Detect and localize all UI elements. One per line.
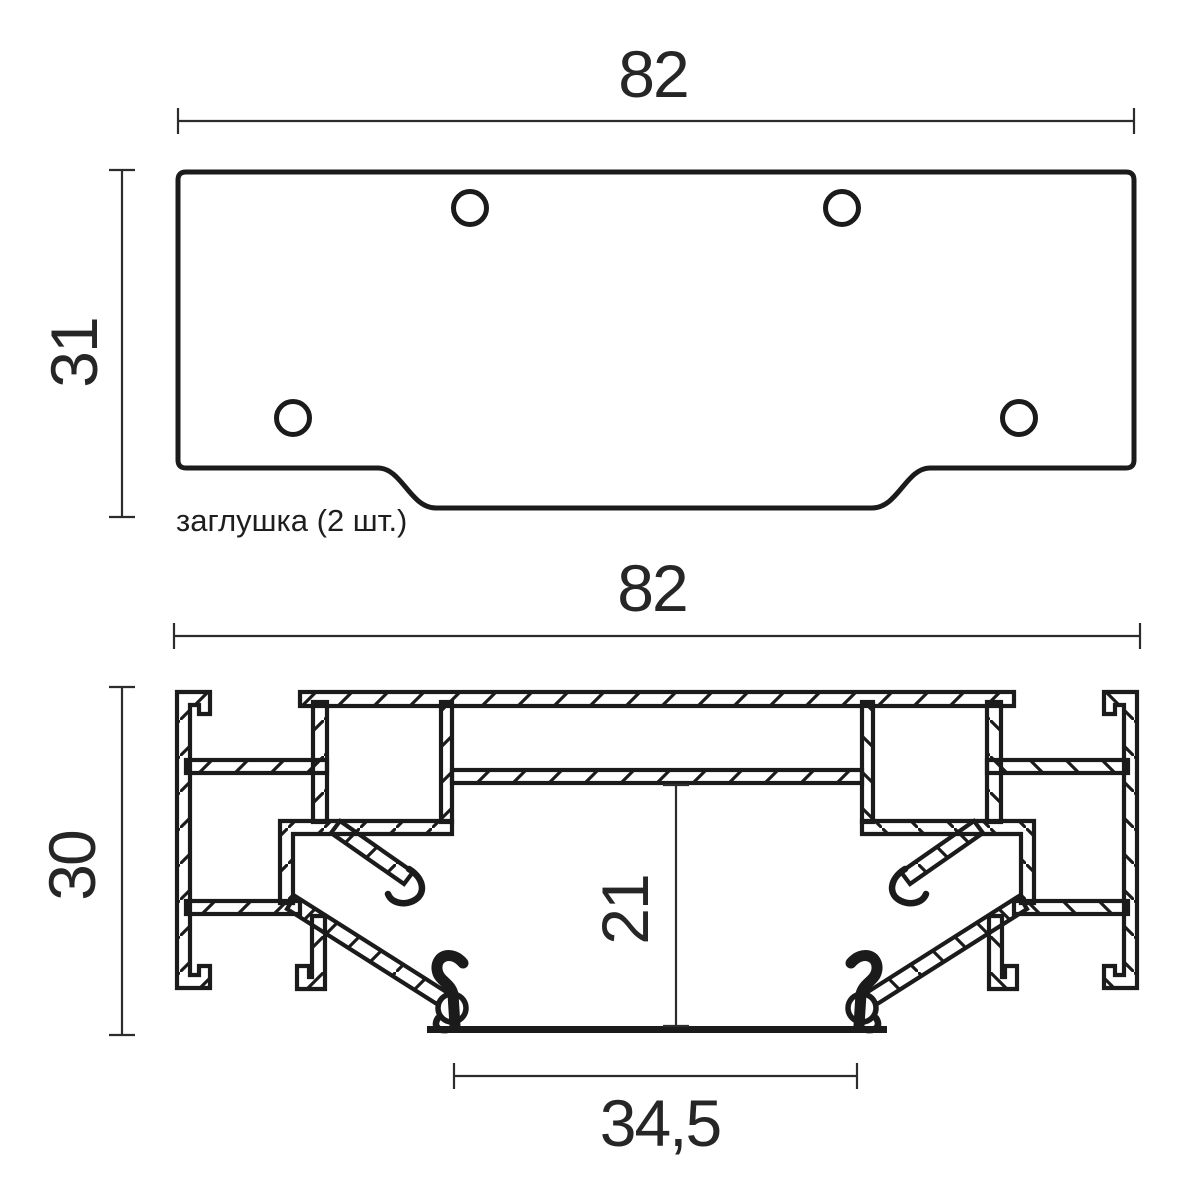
outer-channel xyxy=(177,692,210,988)
profile-section-view: 82 30 21 34,5 xyxy=(35,551,1140,1160)
hole-top-right xyxy=(826,192,859,225)
top-width-value: 82 xyxy=(618,37,687,111)
bottom-panel xyxy=(427,1026,887,1033)
dimension-profile-height: 30 xyxy=(35,687,135,1035)
end-cap-caption: заглушка (2 шт.) xyxy=(176,503,407,538)
hole-bottom-left xyxy=(277,402,310,435)
profile-width-value: 82 xyxy=(617,551,686,625)
cavity-height-value: 21 xyxy=(588,875,662,944)
inner-wall-b xyxy=(441,702,452,822)
mid-flange-strip xyxy=(452,770,862,783)
dimension-cap-height: 31 xyxy=(37,170,135,517)
dimension-top-width: 82 xyxy=(178,37,1134,134)
dimension-cavity-height: 21 xyxy=(588,785,689,1026)
hole-bottom-right xyxy=(1003,402,1036,435)
top-flange-strip xyxy=(300,692,1014,706)
dimension-profile-width: 82 xyxy=(174,551,1140,649)
inner-wall-a xyxy=(313,702,327,822)
profile-left-half xyxy=(177,692,466,1030)
technical-drawing-canvas: 82 31 заглушка (2 шт.) xyxy=(0,0,1200,1200)
technical-drawing-page: 82 31 заглушка (2 шт.) xyxy=(0,0,1200,1200)
end-cap-plate-outline xyxy=(178,172,1134,508)
lower-shelf xyxy=(186,901,300,914)
dimension-bottom-opening: 34,5 xyxy=(454,1063,857,1160)
upper-shelf xyxy=(186,760,327,773)
bottom-opening-value: 34,5 xyxy=(600,1086,720,1160)
hole-top-left xyxy=(454,192,487,225)
cap-height-value: 31 xyxy=(37,318,111,387)
profile-right-half xyxy=(848,692,1137,1030)
profile-height-value: 30 xyxy=(35,831,109,901)
end-cap-top-view: 82 31 заглушка (2 шт.) xyxy=(37,37,1134,538)
step-jog-wall xyxy=(280,821,452,903)
